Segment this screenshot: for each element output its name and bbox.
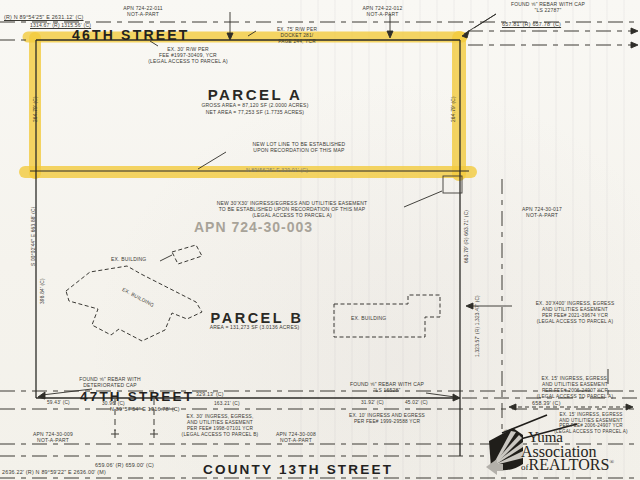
street-47-label: 47TH STREET <box>80 389 194 405</box>
corridor-cross-2 <box>150 430 158 438</box>
monument-note-ne: FOUND ⅝" REBAR WITH CAP "LS 22787" <box>487 1 609 13</box>
dim-47-329: 329.13' (C) <box>196 391 224 397</box>
dim-top-right: 657.81' (R) 657.78' (C) <box>502 21 561 28</box>
apn-label-east: APN 724-30-017 NOT-A-PART <box>503 206 581 218</box>
dim-parcel-a-east: 264.79' (C) <box>451 96 457 122</box>
street-46-label: 46TH STREET <box>72 27 190 44</box>
logo-text-of: of <box>521 462 529 472</box>
apn-label-south: APN 724-30-008 NOT-A-PART <box>260 431 332 443</box>
arrow-monument-se <box>453 394 460 401</box>
monument-note-sw: FOUND ⅝" REBAR WITH DETERIORATED CAP <box>60 376 160 388</box>
arrow-rw46-2 <box>631 42 638 48</box>
parcel-b-area: AREA = 131,273 SF (3.0136 ACRES) <box>172 324 337 330</box>
logo-registered-mark: ® <box>609 459 614 465</box>
note-e30x400: EX. 30'X400' INGRESS, EGRESS AND UTILITI… <box>510 301 640 324</box>
plat-linework <box>0 0 640 480</box>
street-c13-label: COUNTY 13TH STREET <box>203 462 393 478</box>
leader-bldg-small <box>160 255 172 261</box>
dim-47-5943: 59.43' (C) <box>47 400 70 406</box>
dim-47-16321: 163.21' (C) <box>214 401 240 407</box>
parcel-a-net-area: NET AREA = 77,253 SF (1.7735 ACRES) <box>145 109 365 115</box>
arrow-rw46-1 <box>631 28 638 34</box>
note-e15-a: EX. 15' INGRESS, EGRESS, AND UTILITIES E… <box>510 376 640 399</box>
dim-top-bearing: (R) N 89°54'25" E 2631.12' (C) <box>4 14 84 21</box>
building-label-small: EX. BUILDING <box>111 256 146 262</box>
note-e10: EX. 10' INGRESS AND EGRESS PER FEE# 1999… <box>326 413 448 425</box>
dim-47-bearing: N 89°57'54" E 1316.78' (C) <box>110 406 180 413</box>
leader-monument-se <box>426 393 455 397</box>
survey-plat-page: APN 724-22-011 NOT-A-PART (R) N 89°54'25… <box>0 0 640 480</box>
arrow-e30x400 <box>466 303 473 309</box>
dim-parcel-a-west: 264.79' (C) <box>33 96 39 122</box>
dim-47-4502: 45.02' (C) <box>405 400 428 406</box>
apn-label-ne: APN 724-22-012 NOT-A-PART <box>335 5 430 17</box>
dim-47-3192: 31.92' (C) <box>361 400 384 406</box>
leader-monument-ne-2 <box>474 14 496 28</box>
building-label-east: EX. BUILDING <box>351 315 386 321</box>
parcel-a-gross-area: GROSS AREA = 87,120 SF (2.0000 ACRES) <box>145 102 365 108</box>
apn-label-sw: APN 724-30-009 NOT-A-PART <box>14 431 92 443</box>
note-new-easement: NEW 30'X30' INGRESS/EGRESS AND UTILITIES… <box>172 200 412 218</box>
dim-c13-2: 2636.22' (R) N 89°59'22" E 2636.00' (M) <box>2 469 106 476</box>
note-rw75: EX. 75' R/W PER DOCKET 281/ PAGE 244, YC… <box>258 27 336 45</box>
note-rw30: EX. 30' R/W PER FEE #1997-30409, YCR (LE… <box>118 46 258 64</box>
dim-west-dist: 398.84' (C) <box>40 278 46 304</box>
note-new-lot-line: NEW LOT LINE TO BE ESTABLISHED UPON RECO… <box>224 141 374 153</box>
dim-new-lot-line: N 89°56'25" E 329.01' (C) <box>212 167 342 173</box>
dim-east-2: 1,323.57' (R) 1,323.47' (C) <box>475 295 481 357</box>
building-outline-small <box>172 245 202 264</box>
logo-text-realtors: ofREALTORS® <box>521 457 614 473</box>
dim-c13-1: 659.06' (R) 659.00' (C) <box>95 462 154 469</box>
corridor-cross-1 <box>111 430 119 438</box>
dim-658: 658.39' (C) <box>532 400 561 407</box>
building-outline-east <box>334 295 440 337</box>
apn-label-main: APN 724-30-003 <box>194 219 313 236</box>
logo-text-realtors-word: REALTORS <box>529 456 610 473</box>
dim-west-bearing: S 00°02'44" E 663.88' (C) <box>31 206 37 266</box>
apn-label-nw: APN 724-22-011 NOT-A-PART <box>93 5 193 17</box>
monument-note-se: FOUND ⅝" REBAR WITH CAP "LS 16528" <box>328 381 446 393</box>
dim-east-1: 663.79' (R) 663.71' (C) <box>464 210 470 263</box>
